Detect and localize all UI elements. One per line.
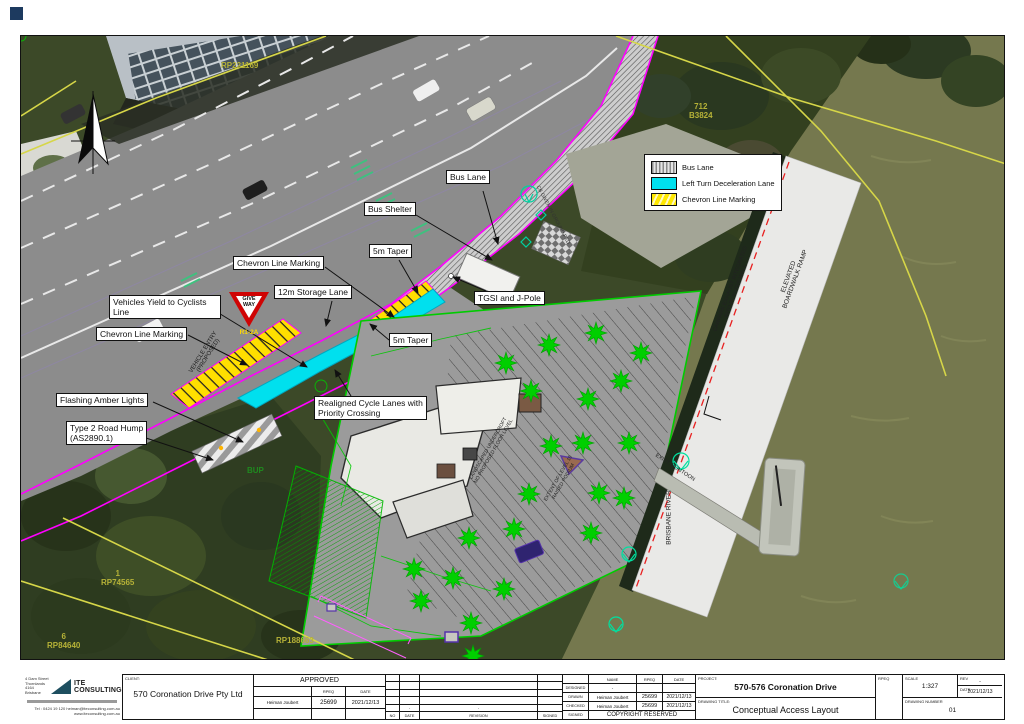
rpeq-label: RPEQ	[637, 675, 663, 683]
approved-title: APPROVED	[254, 675, 385, 687]
drawn-label: DRAWN	[563, 693, 589, 701]
callout-flashing-lights: Flashing Amber Lights	[56, 393, 148, 407]
logo-divider	[27, 700, 117, 703]
legend-item-chevron: Chevron Line Marking	[651, 191, 777, 207]
give-way-sign: GIVE WAY R1-2A	[229, 292, 269, 336]
scale-label: SCALE	[905, 676, 918, 681]
rpeq-column: RPEQ	[876, 675, 903, 719]
scale-value: 1:327	[903, 683, 957, 690]
lot-label-6-rp84640: 6 RP84640	[47, 632, 80, 650]
legend: Bus Lane Left Turn Deceleration Lane Che…	[644, 154, 782, 211]
drawing-title: Conceptual Access Layout	[696, 705, 875, 715]
legend-item-bus-lane: Bus Lane	[651, 159, 777, 175]
callout-chevron-low: Chevron Line Marking	[96, 327, 187, 341]
chevron-swatch	[651, 193, 677, 206]
ite-logo-icon	[51, 679, 71, 694]
copyright: COPYRIGHT RESERVED	[589, 711, 695, 719]
date-value: 2021/12/13	[958, 689, 1002, 695]
rev-date-label: DATE	[400, 712, 420, 719]
callout-chevron-top: Chevron Line Marking	[233, 256, 324, 270]
drawing-number-label: DRAWING NUMBER	[905, 699, 943, 704]
left-turn-swatch	[651, 177, 677, 190]
rev-value: -	[958, 679, 1002, 685]
consultant-block: 4 Dam Street Thornlands 4164 Brisbane IT…	[25, 676, 120, 718]
lot-label-1-rp74565: 1 RP74565	[101, 569, 134, 587]
revision-dash2: -	[420, 705, 538, 711]
name-label: NAME	[589, 675, 637, 683]
callout-storage-lane: 12m Storage Lane	[274, 285, 352, 299]
legend-item-left-turn: Left Turn Deceleration Lane	[651, 175, 777, 191]
legend-label: Left Turn Deceleration Lane	[682, 179, 775, 188]
checked-label: CHECKED	[563, 702, 589, 710]
designed-name: -	[589, 684, 637, 692]
callout-tgsi: TGSI and J-Pole	[474, 291, 545, 305]
callout-5m-taper-low: 5m Taper	[389, 333, 432, 347]
corner-mark	[10, 7, 23, 20]
client-name: 570 Coronation Drive Pty Ltd	[123, 689, 253, 699]
give-way-triangle: GIVE WAY	[229, 292, 269, 327]
checked-date: 2021/12/13	[663, 702, 695, 710]
brisbane-river-label: BRISBANE RIVER	[666, 468, 673, 568]
approved-name: Heiman Joubert	[254, 697, 312, 708]
checked-name: Heiman Joubert	[589, 702, 637, 710]
rev-signed-label: SIGNED	[538, 712, 562, 719]
bup-label: BUP	[247, 466, 264, 475]
scale-box: SCALE 1:327 REV - DATE 2021/12/13 DRAWIN…	[903, 675, 1002, 719]
revision-dash: -	[400, 705, 420, 711]
client-box: CLIENT: 570 Coronation Drive Pty Ltd	[123, 675, 254, 719]
approved-rpeq-label: RPEQ	[312, 687, 346, 696]
lot-label-rp221169: RP221169	[221, 61, 258, 70]
rev-revision-label: REVISION	[420, 712, 538, 719]
approved-date: 2021/12/13	[346, 697, 385, 708]
lot-label-712-b3824: 712 B3824	[689, 102, 713, 120]
consultant-name: ITE CONSULTING	[74, 680, 122, 694]
rev-no-label: NO	[386, 712, 400, 719]
callout-road-hump: Type 2 Road Hump (AS2890.1)	[66, 421, 147, 445]
amber-light-2	[257, 428, 261, 432]
title-block: CLIENT: 570 Coronation Drive Pty Ltd APP…	[122, 674, 1005, 720]
give-way-text: GIVE WAY	[229, 297, 269, 308]
callout-bus-shelter: Bus Shelter	[364, 202, 416, 216]
revision-table: - - NO DATE REVISION SIGNED	[386, 675, 563, 719]
rpeq-col-label: RPEQ	[878, 676, 889, 681]
drawn-date: 2021/12/13	[663, 693, 695, 701]
callout-bus-lane: Bus Lane	[446, 170, 490, 184]
approved-date-label: DATE	[346, 687, 385, 696]
bus-lane-swatch	[651, 161, 677, 174]
drawn-rpeq: 25699	[637, 693, 663, 701]
callout-realigned-cycle: Realigned Cycle Lanes with Priority Cros…	[314, 396, 427, 420]
project-label: PROJECT:	[698, 676, 717, 681]
checked-rpeq: 25699	[637, 702, 663, 710]
client-label: CLIENT:	[125, 676, 140, 681]
signed-label: SIGNED	[563, 711, 589, 719]
drawing-title-label: DRAWING TITLE:	[698, 699, 730, 704]
aerial-scene	[21, 36, 1005, 660]
pontoon	[759, 458, 806, 557]
designed-label: DESIGNED	[563, 684, 589, 692]
callout-yield-line: Vehicles Yield to Cyclists Line	[109, 295, 221, 319]
consultant-address: 4 Dam Street Thornlands 4164 Brisbane	[25, 677, 49, 695]
drawn-name: Heiman Joubert	[589, 693, 637, 701]
amber-light-1	[219, 446, 223, 450]
callout-5m-taper-top: 5m Taper	[369, 244, 412, 258]
legend-label: Bus Lane	[682, 163, 714, 172]
j-pole	[449, 274, 454, 279]
drawing-number: 01	[903, 707, 1002, 714]
personnel-table: NAME RPEQ DATE DESIGNED - DRAWN Heiman J…	[563, 675, 696, 719]
approved-rpeq: 25699	[312, 697, 346, 708]
lot-label-rp188663: RP188663	[276, 636, 314, 645]
drawing-sheet: Bus Lane Left Turn Deceleration Lane Che…	[0, 0, 1024, 724]
sign-code-r1-2a: R1-2A	[229, 329, 269, 336]
date-label: DATE	[663, 675, 695, 683]
project-box: PROJECT: 570-576 Coronation Drive DRAWIN…	[696, 675, 876, 719]
consultant-contact: Tel : 0424 19 120 heiman@iteconsulting.c…	[35, 706, 120, 716]
approved-box: APPROVED RPEQ DATE Heiman Joubert 25699 …	[254, 675, 386, 719]
aerial-plan-view: Bus Lane Left Turn Deceleration Lane Che…	[20, 35, 1005, 660]
legend-label: Chevron Line Marking	[682, 195, 755, 204]
project-name: 570-576 Coronation Drive	[696, 682, 875, 692]
